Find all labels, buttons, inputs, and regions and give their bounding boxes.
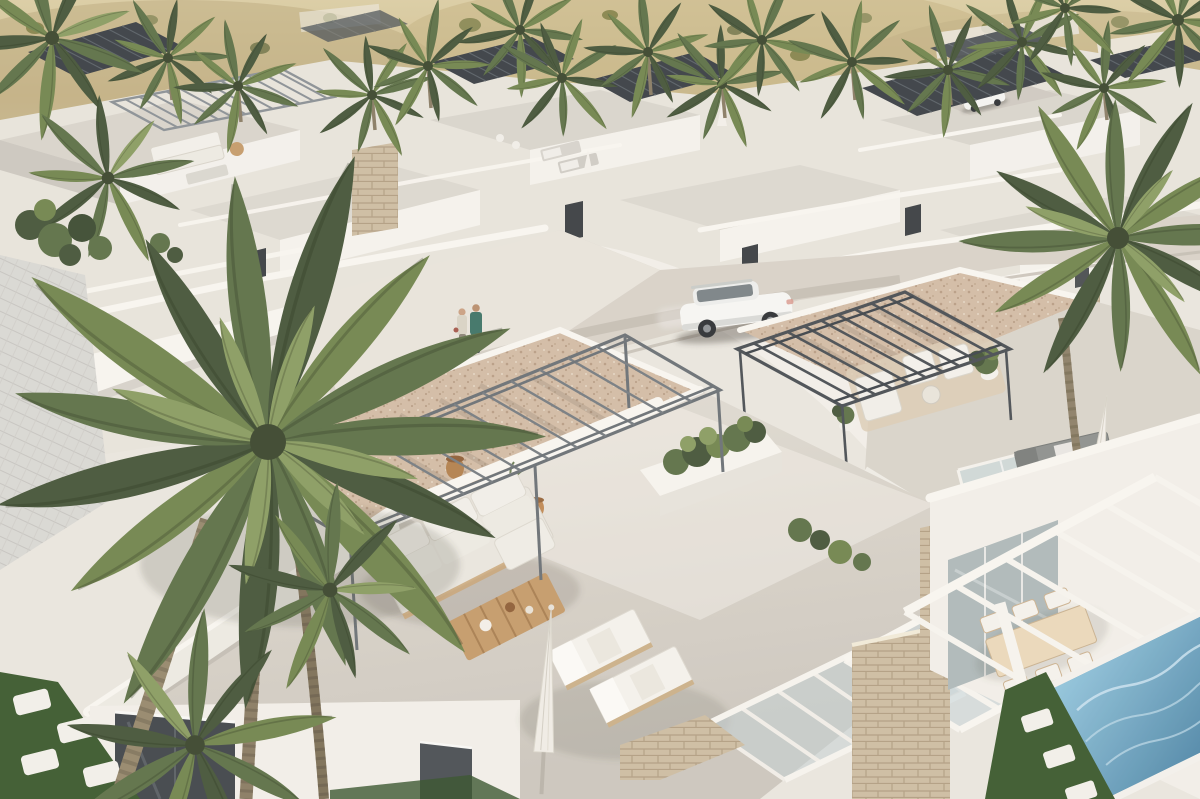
light-wash bbox=[0, 0, 1200, 799]
aerial-villa-render bbox=[0, 0, 1200, 799]
scene-canvas bbox=[0, 0, 1200, 799]
